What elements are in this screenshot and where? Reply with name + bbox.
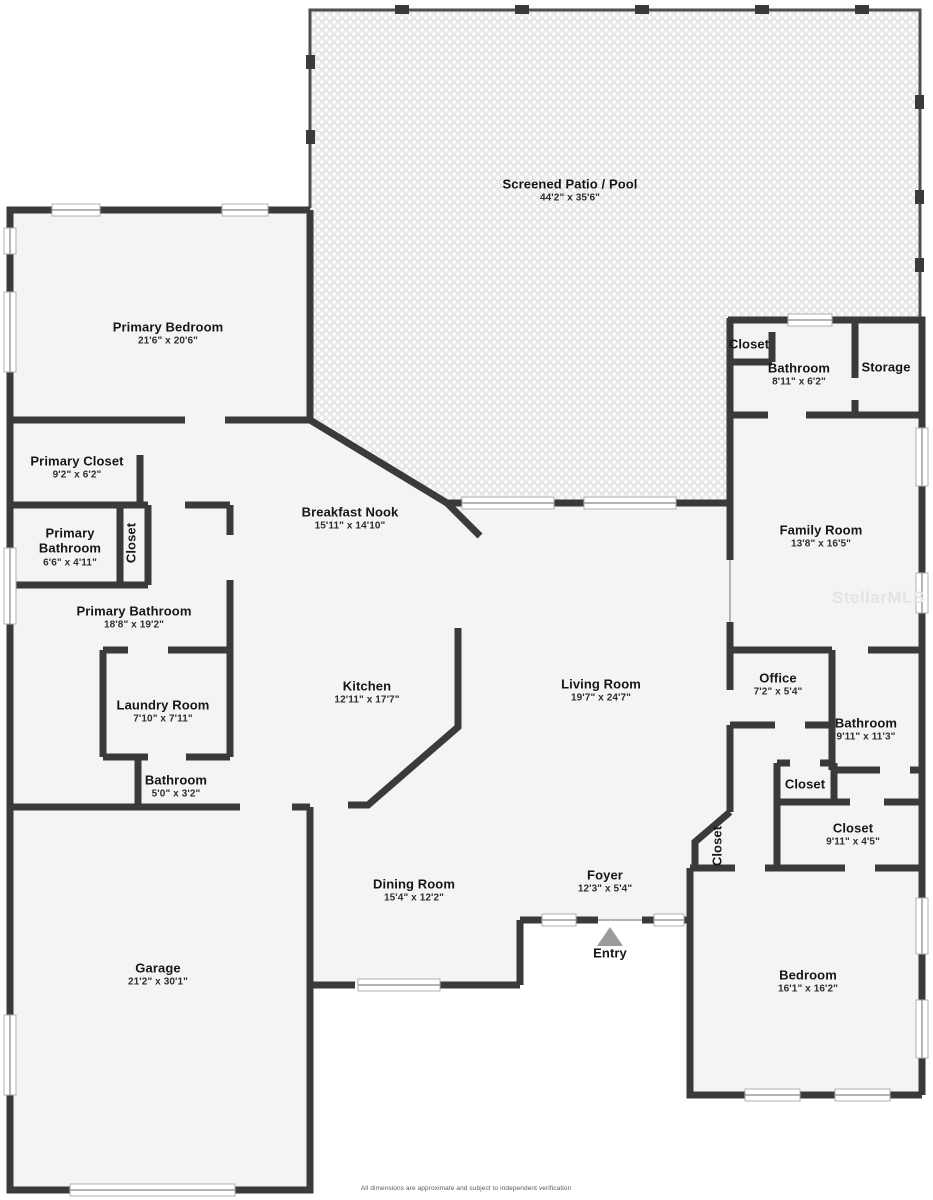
room-label-breakfast-nook: Breakfast Nook 15'11" x 14'10" [302, 504, 399, 531]
room-name: Primary Closet [30, 453, 123, 468]
room-name: Closet [785, 776, 825, 791]
room-dims: 12'11" x 17'7" [334, 695, 399, 706]
room-dims: 15'4" x 12'2" [373, 893, 455, 904]
room-name: Family Room [780, 522, 863, 537]
room-dims: 7'2" x 5'4" [754, 687, 803, 698]
room-dims: 8'11" x 6'2" [768, 377, 830, 388]
room-label-dining-room: Dining Room 15'4" x 12'2" [373, 876, 455, 903]
room-dims: 21'6" x 20'6" [113, 336, 224, 347]
room-name: Living Room [561, 676, 641, 691]
room-label-primary-bathroom: Primary Bathroom 18'8" x 19'2" [76, 603, 191, 630]
room-name: Storage [861, 359, 910, 374]
floor-plan: StellarMLS [0, 0, 933, 1200]
room-name: Bathroom [768, 360, 830, 375]
room-name: Breakfast Nook [302, 504, 399, 519]
room-dims: 12'3" x 5'4" [578, 884, 632, 895]
room-name: Garage [128, 960, 188, 975]
room-name: Screened Patio / Pool [502, 176, 637, 191]
room-name: Bathroom [835, 715, 897, 730]
room-label-bedroom: Bedroom 16'1" x 16'2" [778, 967, 838, 994]
room-dims: 21'2" x 30'1" [128, 977, 188, 988]
room-label-office: Office 7'2" x 5'4" [754, 670, 803, 697]
room-dims: 44'2" x 35'6" [502, 193, 637, 204]
room-name: Bathroom [145, 772, 207, 787]
room-name: Primary Bathroom [26, 526, 114, 557]
room-label-living-room: Living Room 19'7" x 24'7" [561, 676, 641, 703]
room-label-primary-bedroom: Primary Bedroom 21'6" x 20'6" [113, 319, 224, 346]
room-name: Primary Bedroom [113, 319, 224, 334]
room-name: Dining Room [373, 876, 455, 891]
room-dims: 7'10" x 7'11" [117, 714, 210, 725]
room-label-entry: Entry [593, 945, 627, 960]
room-label-garage: Garage 21'2" x 30'1" [128, 960, 188, 987]
room-label-laundry-room: Laundry Room 7'10" x 7'11" [117, 697, 210, 724]
room-name: Bedroom [778, 967, 838, 982]
room-label-bathroom-small: Bathroom 5'0" x 3'2" [145, 772, 207, 799]
room-dims: 9'2" x 6'2" [30, 470, 123, 481]
entry-arrow-icon [597, 927, 623, 946]
room-dims: 9'11" x 11'3" [835, 732, 897, 743]
room-label-bathroom-hall: Bathroom 8'11" x 6'2" [768, 360, 830, 387]
room-dims: 9'11" x 4'5" [826, 837, 880, 848]
room-label-closet-small-right: Closet [785, 776, 825, 791]
room-dims: 13'8" x 16'5" [780, 539, 863, 550]
floor-plan-drawing [0, 0, 933, 1200]
room-label-closet-foyer: Closet [709, 826, 724, 866]
room-name: Closet [709, 826, 724, 866]
room-dims: 15'11" x 14'10" [302, 521, 399, 532]
room-dims: 6'6" x 4'11" [26, 557, 114, 568]
room-label-screened-patio-pool: Screened Patio / Pool 44'2" x 35'6" [502, 176, 637, 203]
room-name: Kitchen [334, 678, 399, 693]
room-label-storage: Storage [861, 359, 910, 374]
room-name: Closet [729, 336, 769, 351]
room-dims: 18'8" x 19'2" [76, 620, 191, 631]
room-dims: 5'0" x 3'2" [145, 789, 207, 800]
room-name: Primary Bathroom [76, 603, 191, 618]
room-dims: 19'7" x 24'7" [561, 693, 641, 704]
room-label-foyer: Foyer 12'3" x 5'4" [578, 867, 632, 894]
room-name: Laundry Room [117, 697, 210, 712]
room-label-family-room: Family Room 13'8" x 16'5" [780, 522, 863, 549]
room-label-closet-hall: Closet [729, 336, 769, 351]
room-name: Entry [593, 945, 627, 960]
watermark: StellarMLS [832, 588, 925, 608]
room-name: Closet [123, 523, 138, 563]
room-name: Office [754, 670, 803, 685]
room-name: Closet [826, 820, 880, 835]
room-label-closet-primary: Closet [123, 523, 138, 563]
room-name: Foyer [578, 867, 632, 882]
room-label-bathroom-right: Bathroom 9'11" x 11'3" [835, 715, 897, 742]
disclaimer-text: All dimensions are approximate and subje… [361, 1185, 571, 1192]
room-label-kitchen: Kitchen 12'11" x 17'7" [334, 678, 399, 705]
room-label-closet-right: Closet 9'11" x 4'5" [826, 820, 880, 847]
room-dims: 16'1" x 16'2" [778, 984, 838, 995]
room-label-primary-bathroom-small: Primary Bathroom 6'6" x 4'11" [26, 526, 114, 569]
room-label-primary-closet: Primary Closet 9'2" x 6'2" [30, 453, 123, 480]
